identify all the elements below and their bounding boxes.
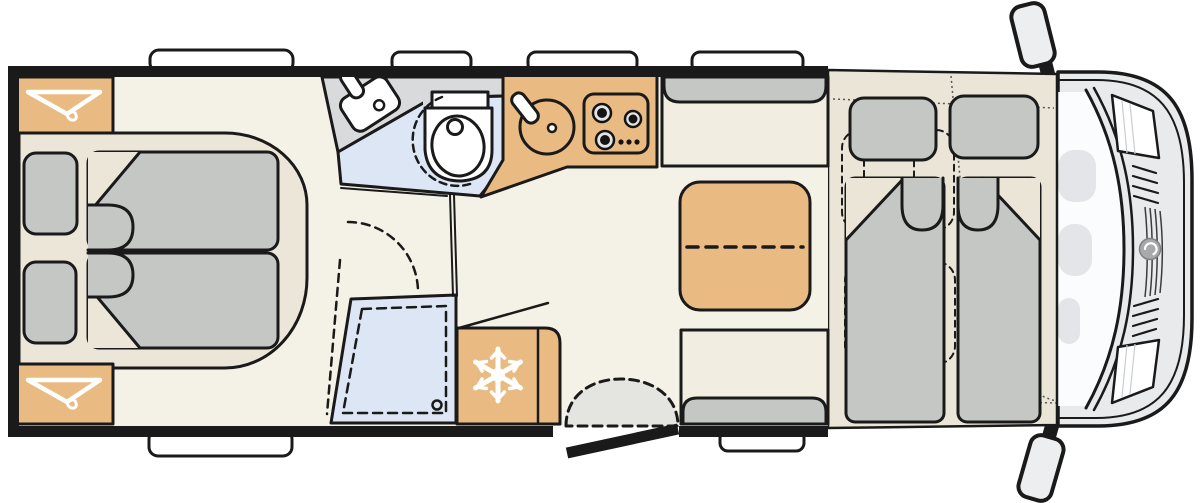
front-bed-pillow-right <box>950 96 1038 158</box>
wall-bottom-right <box>679 426 828 437</box>
rear-bed-mattress-bottom <box>88 253 278 348</box>
dinette-bench-front <box>662 77 828 166</box>
shower <box>331 295 456 423</box>
fridge <box>457 328 560 424</box>
front-bed-pillow-left <box>850 98 936 160</box>
dinette-table <box>680 182 810 310</box>
wardrobe-top <box>14 77 113 133</box>
wall-rear <box>8 66 19 437</box>
rear-bed-pillow-bottom <box>24 262 76 343</box>
rear-bed-pillow-top <box>24 153 77 234</box>
overcab-bed-area <box>828 70 1057 428</box>
entry-door-open-leaf <box>567 429 678 453</box>
shower-tray <box>331 295 456 423</box>
dinette-bench-rear <box>681 330 828 424</box>
washroom <box>322 68 505 196</box>
wall-bottom-left <box>8 426 553 437</box>
brand-swirl-icon <box>1140 239 1161 260</box>
toilet <box>413 92 492 186</box>
dashboard-blob <box>1058 224 1092 276</box>
side-mirror-bottom <box>1016 422 1066 503</box>
rear-bed-mattress-top <box>88 152 278 250</box>
dashboard-blob <box>1058 150 1096 202</box>
motorhome-floorplan <box>0 0 1200 503</box>
floorplan-canvas <box>0 0 1200 503</box>
side-mirror-top <box>1009 1 1057 81</box>
wall-top <box>8 66 828 77</box>
driver-cab <box>1058 72 1192 426</box>
wardrobe-bottom <box>14 364 113 424</box>
dinette <box>662 77 828 424</box>
dashboard-blob <box>1058 298 1080 344</box>
front-bed-mattress-left <box>846 178 944 422</box>
sink-drain <box>548 124 556 132</box>
living-area <box>14 68 828 426</box>
front-bed-mattress-right <box>958 178 1040 422</box>
